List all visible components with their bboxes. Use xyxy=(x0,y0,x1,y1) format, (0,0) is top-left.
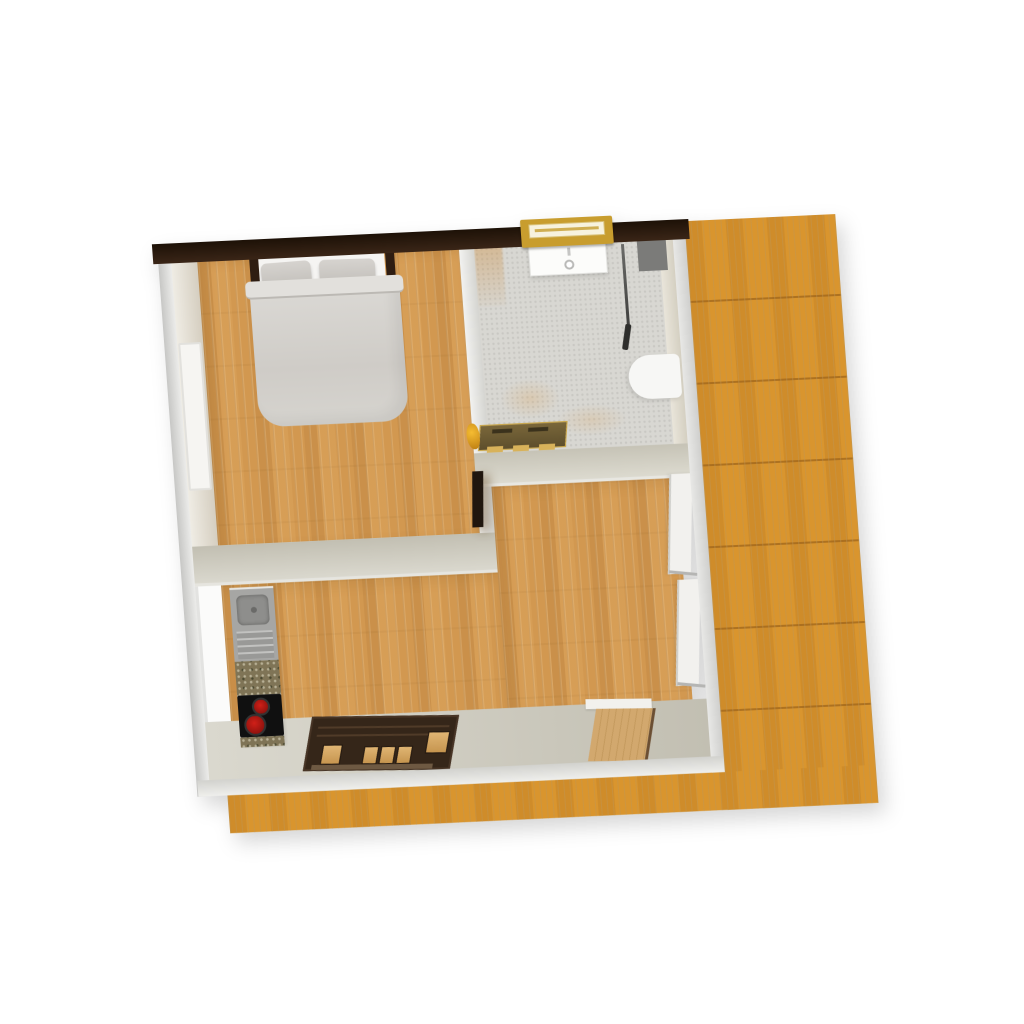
cooktop xyxy=(237,694,284,738)
toilet xyxy=(627,354,682,400)
bathroom-floor-smudge xyxy=(474,246,506,307)
living-room-floor xyxy=(491,478,692,710)
bed-duvet xyxy=(249,279,409,428)
radiator-foot xyxy=(539,444,555,451)
floor-plan-render-canvas[interactable] xyxy=(0,0,1024,1024)
radiator-slot xyxy=(528,427,548,432)
bathroom-floor-smudge xyxy=(499,377,562,420)
faucet-spout xyxy=(567,248,571,256)
sink-drainboard xyxy=(236,630,274,660)
cabinet-glass-door xyxy=(361,746,379,764)
towel-radiator xyxy=(478,421,568,451)
granite-countertop xyxy=(240,736,285,748)
patio-door-leaf xyxy=(676,579,700,686)
kitchen-sink xyxy=(229,588,278,662)
cabinet-base xyxy=(311,764,433,770)
cabinet-glass-door xyxy=(378,746,396,764)
cabinet-glass-door xyxy=(425,731,451,753)
radiator-slot xyxy=(492,429,512,434)
entry-door-open-leaf xyxy=(588,708,656,761)
apartment-building xyxy=(158,221,725,797)
cabinet-groove xyxy=(318,725,449,729)
sideboard-cabinet xyxy=(303,715,459,771)
bathroom-door-open-leaf xyxy=(472,471,483,528)
faucet-icon xyxy=(564,259,575,269)
scene-3d-view[interactable] xyxy=(158,213,904,884)
radiator-foot xyxy=(487,446,503,453)
radiator-foot xyxy=(513,445,529,452)
shower-panel xyxy=(637,240,668,271)
bathroom-window xyxy=(520,216,614,248)
sink-drain xyxy=(251,607,257,613)
cabinet-glass-door xyxy=(320,745,343,765)
granite-countertop xyxy=(235,660,281,696)
patio-door-leaf xyxy=(668,473,692,574)
burner-icon xyxy=(244,713,268,736)
sink-basin xyxy=(236,594,270,625)
cabinet-glass-door xyxy=(395,746,413,764)
